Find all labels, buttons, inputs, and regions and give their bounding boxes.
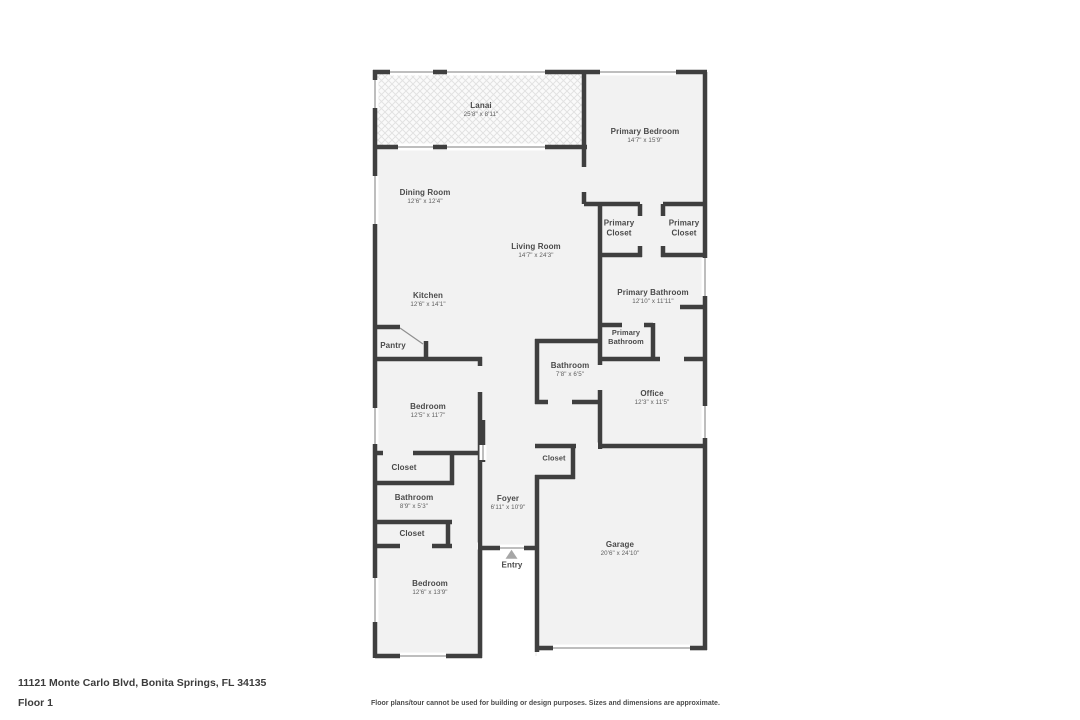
lanai-hatch — [376, 74, 582, 145]
floor-plan-page: Lanai 25'8" x 8'11" Primary Bedroom 14'7… — [0, 0, 1080, 720]
disclaimer-text: Floor plans/tour cannot be used for buil… — [371, 700, 720, 707]
floor-label: Floor 1 — [18, 697, 53, 709]
floor-plan-drawing — [0, 0, 1080, 720]
property-address: 11121 Monte Carlo Blvd, Bonita Springs, … — [18, 677, 266, 689]
room-fills — [373, 70, 707, 660]
